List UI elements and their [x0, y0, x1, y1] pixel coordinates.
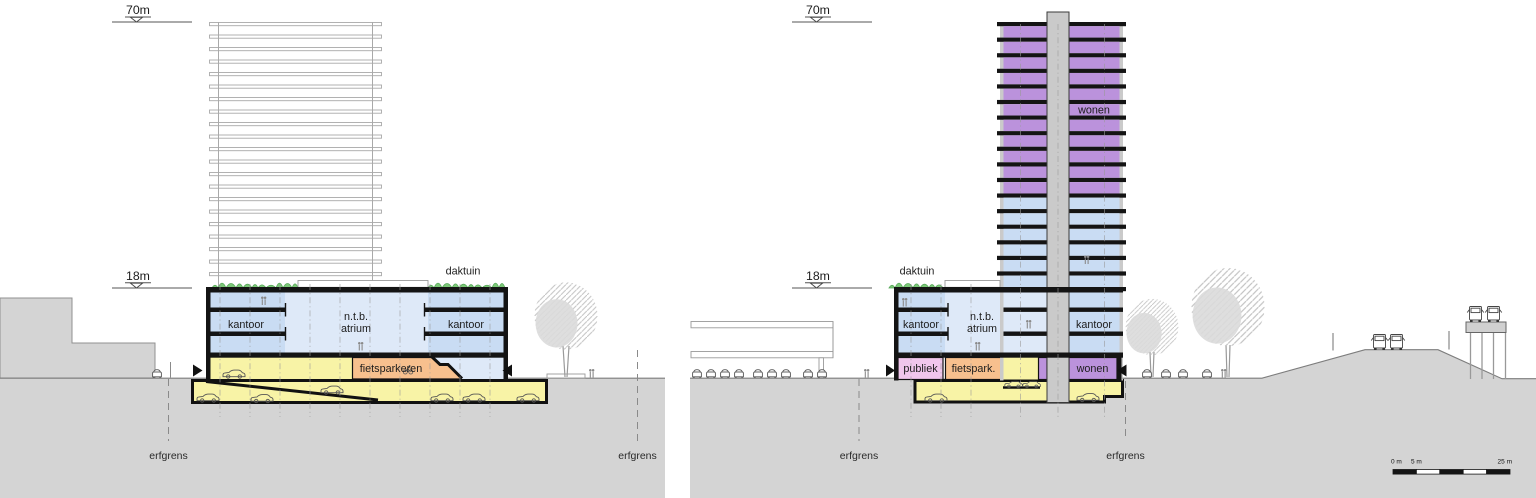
wonen-floor — [1069, 135, 1120, 146]
erfgrens-label: erfgrens — [149, 450, 188, 462]
person-icon — [864, 369, 869, 377]
viaduct-deck — [1466, 322, 1506, 333]
tower-floor-slab — [1069, 178, 1126, 182]
scale-segment — [1440, 470, 1463, 475]
floor-slab — [894, 332, 948, 337]
ghost-floor — [210, 185, 382, 188]
tower-floor-slab — [1069, 38, 1126, 42]
erfgrens-label: erfgrens — [618, 450, 657, 462]
scale-segment — [1487, 470, 1510, 475]
datum-18m-label: 18m — [126, 269, 150, 283]
kantoor-right-label: kantoor — [1076, 319, 1112, 331]
tower-floor-slab — [997, 53, 1047, 57]
tree-planter — [547, 374, 585, 378]
roof-slab — [894, 287, 1123, 293]
tower-floor-slab — [1069, 209, 1126, 213]
kantoor-floor — [1004, 198, 1048, 209]
ghost-floor — [210, 98, 382, 101]
wonen-floor — [1004, 151, 1048, 162]
tower-floor-slab — [1069, 53, 1126, 57]
floor-slab — [206, 308, 286, 313]
car-icon — [693, 370, 702, 378]
person-icon — [589, 369, 594, 377]
erfgrens-label: erfgrens — [840, 450, 879, 462]
tower-floor-slab — [1069, 193, 1126, 197]
tower-floor-slab — [997, 256, 1047, 260]
elevated-road-deck — [691, 322, 833, 328]
atrium-label-2: atrium — [967, 323, 997, 335]
wonen-floor — [1004, 166, 1048, 177]
train-icon — [1467, 307, 1484, 323]
ghost-floor — [210, 135, 382, 138]
floor-slab — [424, 308, 508, 313]
kantoor-floor — [1004, 213, 1048, 224]
wonen-floor — [1004, 135, 1048, 146]
tower-floor-slab — [997, 69, 1047, 73]
tower-floor-slab — [997, 162, 1047, 166]
train-icon — [1485, 307, 1502, 323]
tower-podium-atrium — [1004, 293, 1048, 353]
scale-25-label: 25 m — [1498, 459, 1512, 466]
tower-floor-slab — [997, 209, 1047, 213]
tower-floor-slab — [1069, 69, 1126, 73]
ghost-floor — [210, 148, 382, 151]
wonen-tower-label: wonen — [1077, 105, 1110, 117]
wonen-floor — [1004, 73, 1048, 84]
floor-slab — [1004, 332, 1048, 336]
elevated-road-deck — [691, 352, 833, 358]
car-icon — [1203, 370, 1212, 378]
kantoor-floor — [1069, 198, 1120, 209]
tower-floor-slab — [997, 225, 1047, 229]
tower-facade-right — [1120, 22, 1124, 381]
tower-floor-slab — [1069, 147, 1126, 151]
wonen-floor — [1069, 166, 1120, 177]
ghost-floor — [210, 73, 382, 76]
car-icon — [804, 370, 813, 378]
ghost-floor — [210, 60, 382, 63]
ghost-floor — [210, 210, 382, 213]
wonen-sliver — [1039, 358, 1048, 380]
tree-icon — [1126, 299, 1179, 355]
kantoor-floor — [1004, 260, 1048, 271]
floor-slab — [206, 332, 286, 337]
tower-floor-slab — [1069, 225, 1126, 229]
groundfloor-slab — [894, 353, 1123, 358]
tree-icon — [535, 282, 598, 349]
ghost-floor — [210, 123, 382, 126]
ghost-floor — [210, 160, 382, 163]
floor-slab — [1069, 332, 1123, 336]
datum-triangle — [131, 17, 143, 22]
scale-segment — [1463, 470, 1486, 475]
tower-floor-slab — [1069, 271, 1126, 275]
ghost-floor — [210, 223, 382, 226]
tower-floor-slab — [1069, 162, 1126, 166]
tower-floor-slab — [1069, 22, 1126, 26]
right-section-diagram: 70m 18m erfgrens erfgrens daktuin kantoo… — [690, 3, 1536, 498]
roof-railing — [298, 281, 428, 288]
tower-facade-left — [1000, 22, 1004, 381]
kantoor-floor — [1069, 260, 1120, 271]
wonen-floor — [1004, 57, 1048, 68]
atrium-label-1: n.t.b. — [970, 311, 994, 323]
tree-trunk — [1226, 345, 1230, 377]
ghost-floor — [210, 23, 382, 26]
wonen-floor — [1069, 151, 1120, 162]
car-icon — [754, 370, 763, 378]
tower-floor-slab — [997, 38, 1047, 42]
roof-railing — [945, 281, 1000, 288]
slab-tick — [285, 327, 286, 341]
left-section-diagram: 70m 18m erfgrens erfgrens daktuin kantoo… — [0, 3, 665, 498]
tower-floor-slab — [997, 147, 1047, 151]
section-drawings: 70m 18m erfgrens erfgrens daktuin kantoo… — [0, 0, 1536, 498]
ghost-floor — [210, 198, 382, 201]
daktuin-label: daktuin — [446, 266, 481, 278]
kantoor-floor — [1069, 276, 1120, 287]
tower-floor-slab — [997, 116, 1047, 120]
kantoor-floor — [1004, 244, 1048, 255]
ghost-floor — [210, 173, 382, 176]
tower-floor-slab — [1069, 84, 1126, 88]
slab-tick — [285, 303, 286, 317]
datum-triangle — [811, 17, 823, 22]
wonen-floor — [1004, 120, 1048, 131]
car-icon — [1143, 370, 1152, 378]
wonen-floor — [1069, 182, 1120, 193]
scale-bar-segments — [1393, 470, 1510, 475]
tower-floor-slab — [997, 131, 1047, 135]
ghost-floor — [210, 110, 382, 113]
truck-icon — [1388, 335, 1405, 351]
groundfloor-slab — [206, 353, 508, 358]
groundfloor-parking — [211, 358, 353, 380]
fietsparkeren-label: fietsparkeren — [360, 363, 422, 375]
daktuin-label: daktuin — [900, 266, 935, 278]
wonen-floor — [1004, 42, 1048, 53]
floor-slab — [894, 308, 948, 313]
kantoor-floor — [1004, 229, 1048, 240]
datum-70m-label: 70m — [126, 3, 150, 17]
kantoor-left-label: kantoor — [228, 319, 264, 331]
entry-arrow-left — [886, 365, 895, 377]
scale-5-label: 5 m — [1411, 459, 1422, 466]
tower-floor-slab — [997, 271, 1047, 275]
ghost-floor — [210, 85, 382, 88]
datum-triangle — [131, 283, 143, 288]
scale-segment — [1393, 470, 1416, 475]
datum-triangle — [811, 283, 823, 288]
fietspark-label: fietspark. — [952, 363, 996, 375]
kantoor-floor — [1069, 244, 1120, 255]
wonen-ground-label: wonen — [1076, 363, 1109, 375]
person-icon — [1221, 369, 1226, 377]
floor-slab — [1004, 308, 1048, 312]
slab-tick — [424, 327, 425, 341]
wonen-floor — [1069, 26, 1120, 37]
wonen-floor — [1004, 182, 1048, 193]
car-icon — [1162, 370, 1171, 378]
car-icon — [782, 370, 791, 378]
ghost-floor — [210, 235, 382, 238]
tree-trunk — [563, 346, 569, 377]
tower-floor-slab — [1069, 240, 1126, 244]
neighbor-building-massing — [0, 298, 155, 378]
datum-18m-label: 18m — [806, 269, 830, 283]
ghost-floor — [210, 48, 382, 51]
tower-floor-slab — [997, 193, 1047, 197]
ghost-tower-floors — [210, 23, 382, 276]
sections-svg: 70m 18m erfgrens erfgrens daktuin kantoo… — [0, 0, 1536, 498]
car-icon — [721, 370, 730, 378]
truck-icon — [1371, 335, 1388, 351]
scale-segment — [1416, 470, 1439, 475]
entry-arrow-left — [193, 365, 203, 377]
ghost-floor — [210, 273, 382, 276]
slab-tick — [947, 327, 948, 341]
wonen-floor — [1069, 42, 1120, 53]
groundfloor-parking — [1001, 358, 1039, 380]
tower-floor-slab — [997, 240, 1047, 244]
tower-floor-slab — [997, 178, 1047, 182]
kantoor-floor — [1069, 229, 1120, 240]
car-icon — [707, 370, 716, 378]
tower-floor-slab — [997, 84, 1047, 88]
car-icon — [153, 370, 162, 378]
publiek-label: publiek — [903, 363, 938, 375]
erfgrens-label: erfgrens — [1106, 450, 1145, 462]
atrium-label-1: n.t.b. — [344, 311, 368, 323]
car-icon — [818, 370, 827, 378]
wonen-floor — [1004, 26, 1048, 37]
wonen-floor — [1069, 57, 1120, 68]
kantoor-floor — [1004, 276, 1048, 287]
tower-floor-slab — [1069, 256, 1126, 260]
roof-slab — [206, 287, 508, 293]
wonen-floor — [1004, 89, 1048, 100]
tower-floor-slab — [1069, 131, 1126, 135]
car-icon — [1179, 370, 1188, 378]
floor-slab — [424, 332, 508, 337]
kantoor-left-label: kantoor — [903, 319, 939, 331]
kantoor-floor — [1069, 213, 1120, 224]
kantoor-right-label: kantoor — [448, 319, 484, 331]
slab-tick — [947, 303, 948, 317]
wonen-floor — [1069, 89, 1120, 100]
wonen-floor — [1069, 120, 1120, 131]
tower-floor-slab — [997, 100, 1047, 104]
basement-parking — [915, 381, 1123, 403]
floor-slab — [1069, 308, 1123, 312]
slab-tick — [424, 303, 425, 317]
wonen-floor — [1004, 104, 1048, 115]
tower-floor-slab — [1069, 100, 1126, 104]
datum-70m-label: 70m — [806, 3, 830, 17]
scale-0-label: 0 m — [1391, 459, 1402, 466]
tree-icon — [1191, 268, 1264, 346]
ghost-floor — [210, 248, 382, 251]
ghost-floor — [210, 260, 382, 263]
car-icon — [735, 370, 744, 378]
tower-floor-slab — [997, 22, 1047, 26]
car-icon — [768, 370, 777, 378]
ghost-floor — [210, 35, 382, 38]
atrium-label-2: atrium — [341, 323, 371, 335]
wonen-floor — [1069, 73, 1120, 84]
